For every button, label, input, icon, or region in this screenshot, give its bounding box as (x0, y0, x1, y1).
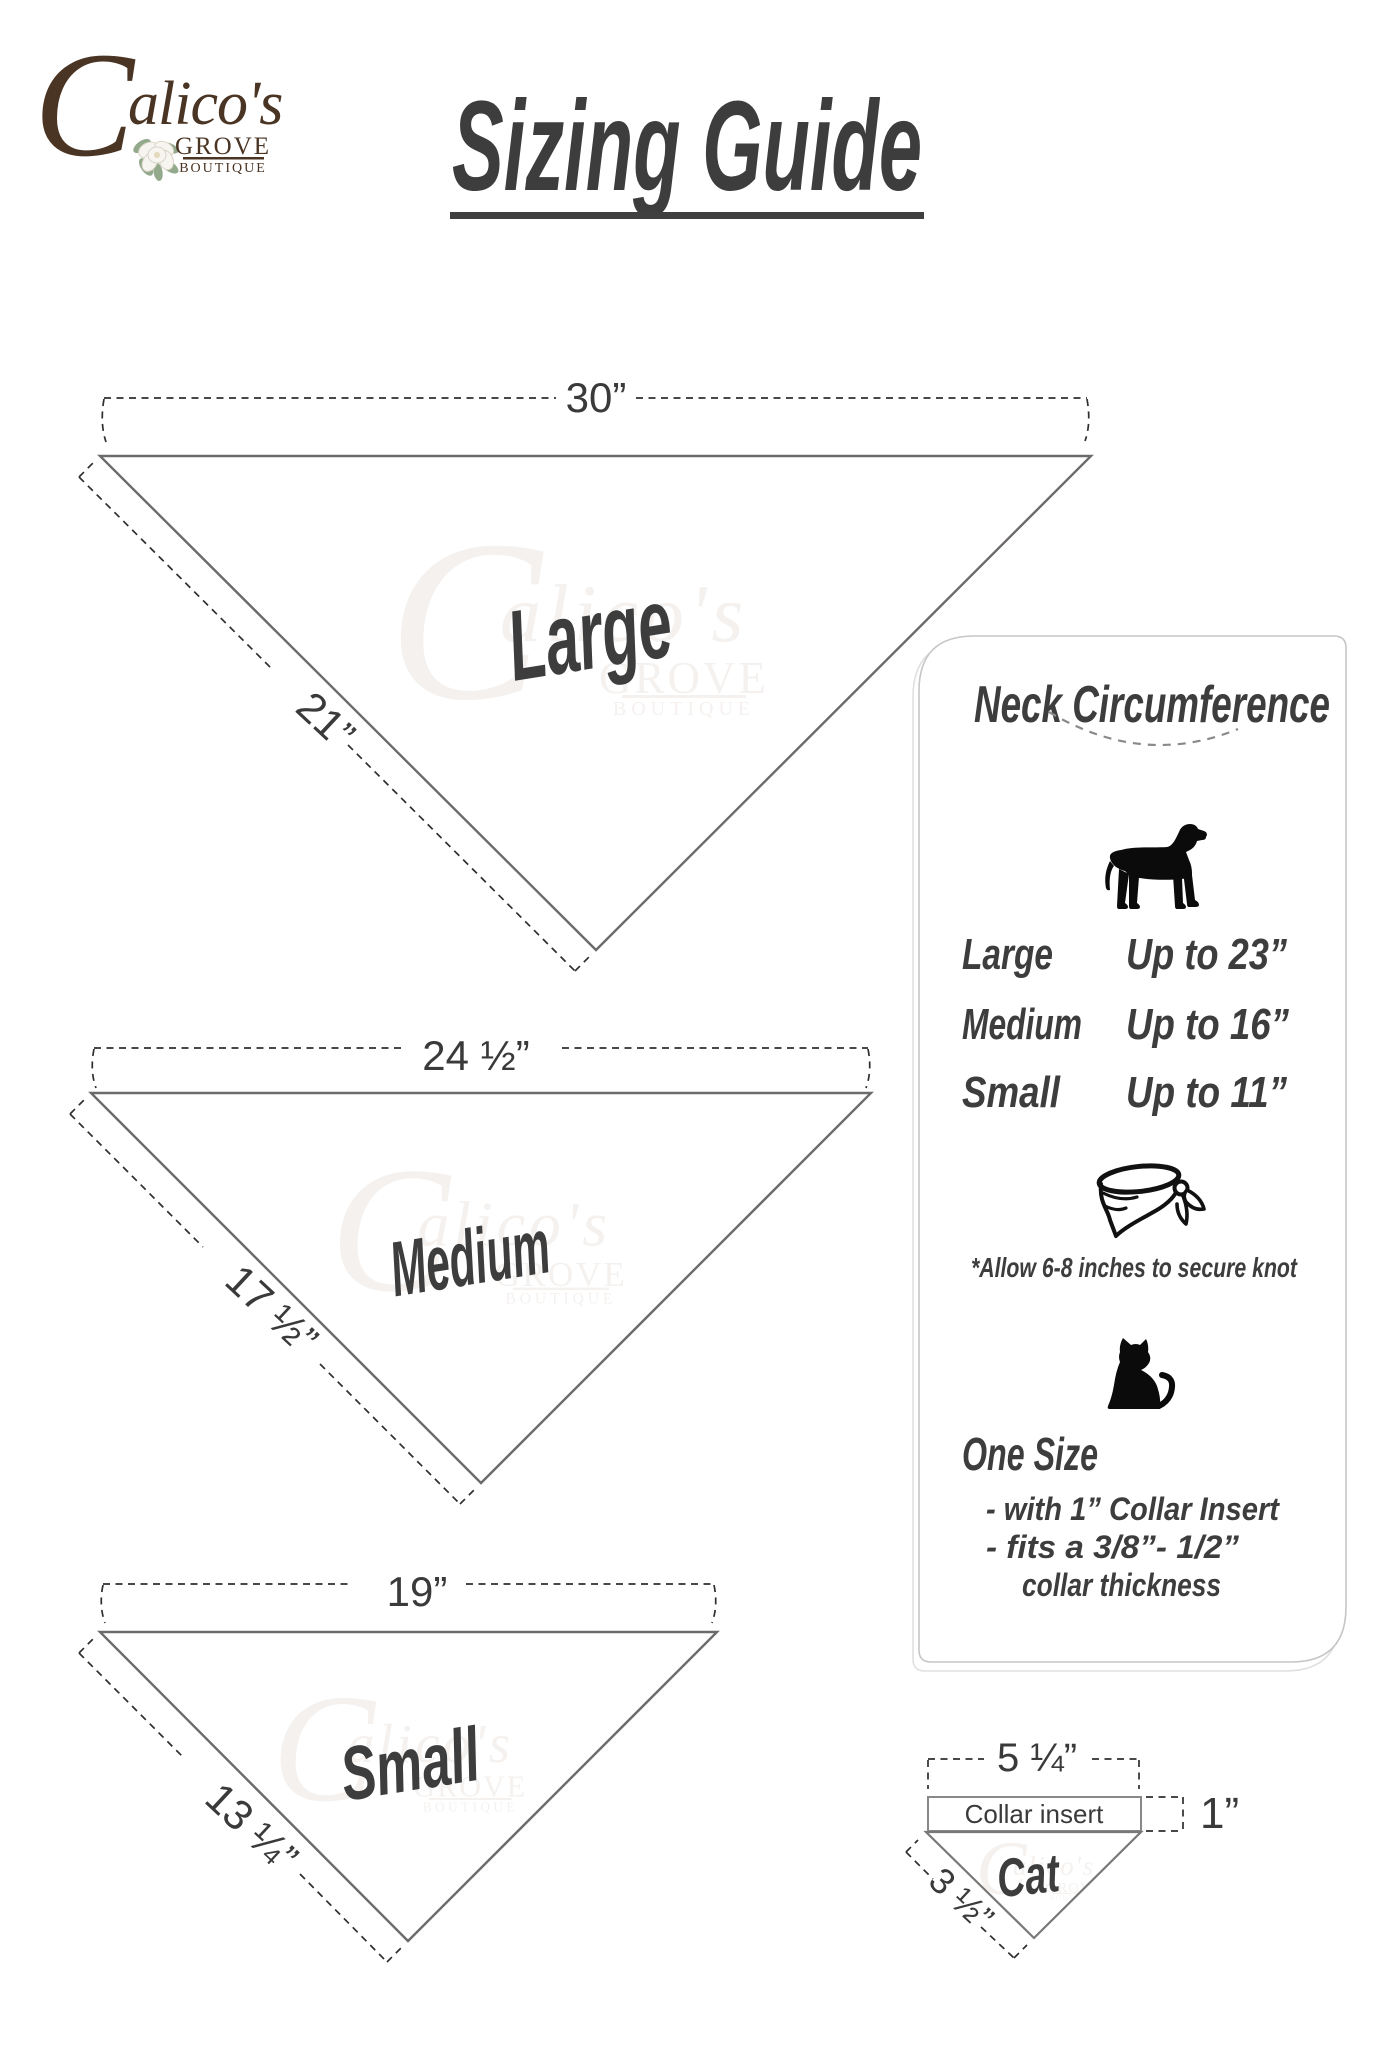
svg-text:GROVE: GROVE (175, 133, 271, 160)
svg-text:Large: Large (962, 930, 1053, 979)
svg-text:5 ¼”: 5 ¼” (997, 1736, 1077, 1780)
svg-text:Neck Circumference: Neck Circumference (974, 676, 1330, 734)
svg-text:collar thickness: collar thickness (1022, 1567, 1221, 1603)
svg-text:Up to 23”: Up to 23” (1126, 930, 1287, 979)
svg-text:Up to 16”: Up to 16” (1126, 1000, 1289, 1049)
svg-text:alico's: alico's (128, 70, 282, 138)
svg-text:19”: 19” (387, 1568, 448, 1615)
svg-text:*Allow 6-8 inches to secure kn: *Allow 6-8 inches to secure knot (971, 1252, 1298, 1283)
svg-text:Small: Small (962, 1068, 1061, 1117)
svg-text:Collar insert: Collar insert (965, 1799, 1104, 1829)
svg-text:Medium: Medium (962, 1000, 1082, 1049)
svg-text:C: C (34, 22, 136, 188)
svg-text:Sizing Guide: Sizing Guide (452, 75, 922, 218)
svg-text:Cat: Cat (994, 1843, 1063, 1909)
svg-text:One Size: One Size (962, 1428, 1098, 1480)
svg-text:24 ½”: 24 ½” (422, 1032, 529, 1079)
svg-text:Up to 11”: Up to 11” (1126, 1068, 1287, 1117)
svg-text:- fits a 3/8”- 1/2”: - fits a 3/8”- 1/2” (986, 1529, 1239, 1565)
svg-text:BOUTIQUE: BOUTIQUE (179, 161, 267, 176)
svg-text:30”: 30” (566, 374, 627, 421)
svg-text:1”: 1” (1200, 1789, 1239, 1838)
svg-text:- with 1” Collar Insert: - with 1” Collar Insert (986, 1491, 1280, 1527)
